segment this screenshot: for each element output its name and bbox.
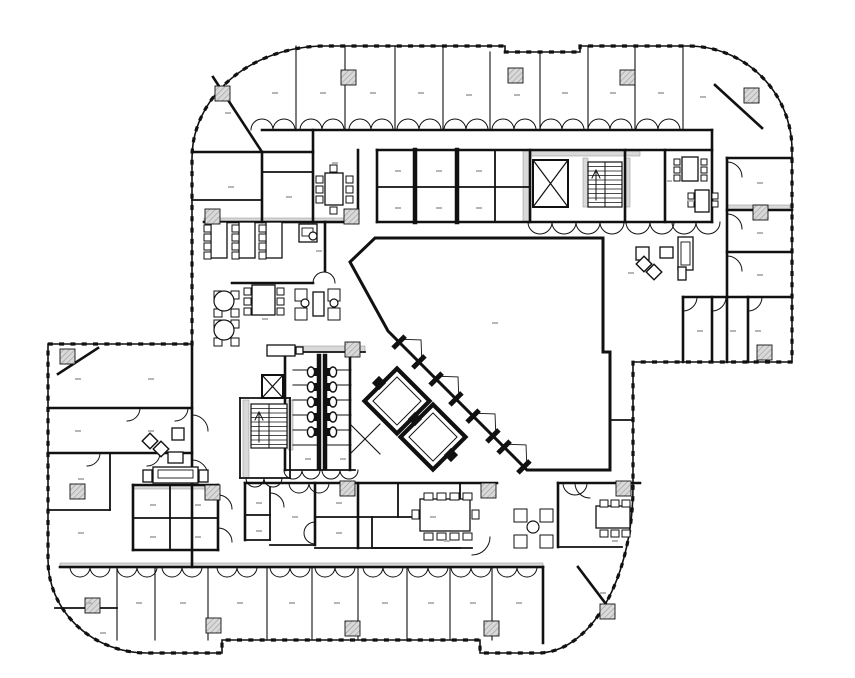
building-envelope bbox=[48, 46, 792, 653]
atrium-outline bbox=[350, 238, 610, 470]
floor-plan-canvas bbox=[0, 0, 855, 678]
floor-plan-page bbox=[0, 0, 855, 678]
